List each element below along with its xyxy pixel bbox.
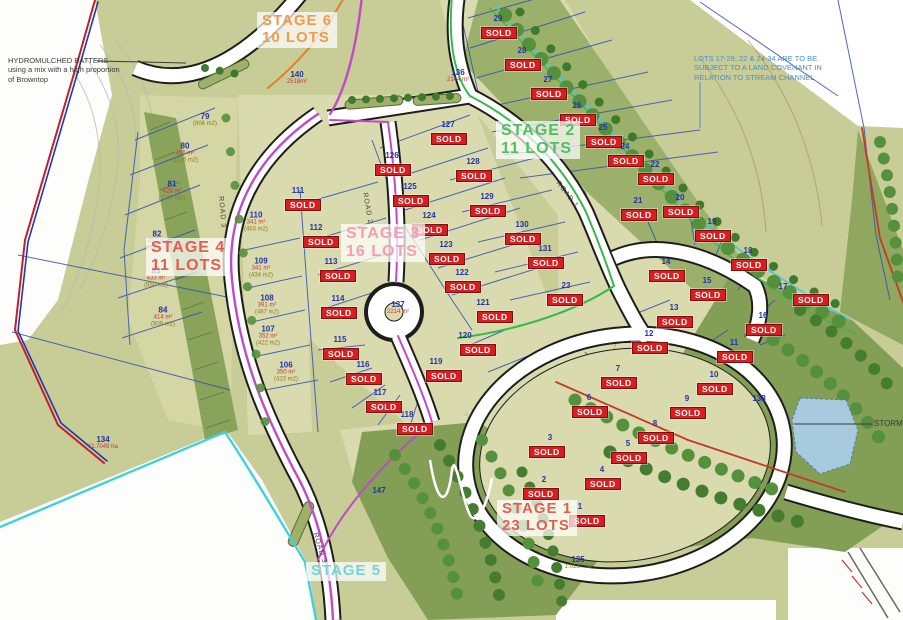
- lot-marker: 22: [651, 161, 660, 169]
- lot-area: (434 m2): [249, 272, 273, 279]
- lot-number: 135: [565, 556, 592, 564]
- road-name-label: ROAD 3: [311, 532, 328, 565]
- sold-badge: SOLD: [649, 270, 685, 282]
- lot-number: 24: [621, 143, 630, 151]
- lot-number: 20: [676, 194, 685, 202]
- lot-number: 110: [244, 212, 268, 220]
- lot-area: 391 m²: [255, 303, 279, 310]
- lot-marker: 26: [573, 102, 582, 110]
- lot-number: 129: [480, 193, 493, 201]
- lot-area: 433 m²: [144, 276, 168, 283]
- lot-marker: 118: [401, 411, 414, 419]
- lot-marker: 27: [544, 76, 553, 84]
- lot-marker: 108391 m²(467 m2): [255, 295, 279, 316]
- road-name-label: ROAD 3: [217, 196, 227, 229]
- lot-marker: 106350 m²(423 m2): [274, 362, 298, 383]
- lot-area: (463 m2): [244, 226, 268, 233]
- sold-badge: SOLD: [657, 316, 693, 328]
- lot-number: 117: [374, 389, 387, 397]
- lot-area: 1.0137 ha: [565, 564, 592, 571]
- sold-badge: SOLD: [528, 257, 564, 269]
- lot-number: 80: [172, 143, 198, 151]
- lot-marker: 23: [562, 282, 571, 290]
- sold-badge: SOLD: [670, 407, 706, 419]
- stormwater-label: STORMW: [874, 419, 903, 429]
- lot-number: 115: [334, 336, 347, 344]
- lot-marker: 114: [332, 295, 345, 303]
- lot-area: 456 m²: [172, 151, 198, 158]
- lot-number: 2: [542, 476, 546, 484]
- lot-number: 114: [332, 295, 345, 303]
- sold-badge: SOLD: [285, 199, 321, 211]
- sold-badge: SOLD: [346, 373, 382, 385]
- lot-area: (1107 m2): [159, 195, 186, 202]
- lot-area: (423 m2): [274, 376, 298, 383]
- lot-marker: 1351.0137 ha: [565, 556, 592, 571]
- stage-label-stage-3: STAGE 316 LOTS: [341, 224, 425, 262]
- lot-marker: 4: [600, 466, 604, 474]
- sold-badge: SOLD: [529, 446, 565, 458]
- lot-marker: 113: [325, 258, 338, 266]
- hydromulch-note: HYDROMULCHED BATTERSusing a mix with a h…: [8, 56, 120, 84]
- lot-area: (467 m2): [255, 309, 279, 316]
- lot-number: 126: [385, 152, 398, 160]
- lot-number: 107: [256, 326, 280, 334]
- sold-badge: SOLD: [429, 253, 465, 265]
- lot-number: 113: [325, 258, 338, 266]
- lot-number: 26: [573, 102, 582, 110]
- sold-badge: SOLD: [586, 136, 622, 148]
- lot-marker: 28: [518, 47, 527, 55]
- sold-badge: SOLD: [632, 342, 668, 354]
- lot-marker: 125: [403, 183, 416, 191]
- road-name-label: ROAD 2: [361, 192, 373, 225]
- sold-badge: SOLD: [572, 406, 608, 418]
- lot-marker: 122: [455, 269, 468, 277]
- sold-badge: SOLD: [481, 27, 517, 39]
- lot-marker: 127: [441, 121, 454, 129]
- lot-marker: 111: [292, 187, 304, 195]
- lot-area: 2144 m²: [447, 77, 469, 84]
- sold-badge: SOLD: [460, 344, 496, 356]
- lot-marker: 21: [634, 197, 643, 205]
- sold-badge: SOLD: [456, 170, 492, 182]
- sold-badge: SOLD: [746, 324, 782, 336]
- lot-marker: 13411.7049 ha: [88, 436, 118, 451]
- lot-marker: 109341 m²(434 m2): [249, 258, 273, 279]
- lot-marker: 17: [779, 283, 788, 291]
- lot-number: 17: [779, 283, 788, 291]
- sold-badge: SOLD: [431, 133, 467, 145]
- lot-number: 138: [752, 395, 765, 403]
- lot-marker: 115: [334, 336, 347, 344]
- lot-number: 120: [458, 332, 471, 340]
- sold-badge: SOLD: [585, 478, 621, 490]
- lot-area: (1116 m2): [172, 157, 198, 164]
- lot-marker: 107352 m²(422 m2): [256, 326, 280, 347]
- lot-number: 111: [292, 187, 304, 195]
- lot-marker: 130: [515, 221, 528, 229]
- lot-marker: 112: [310, 224, 323, 232]
- lot-number: 9: [685, 395, 689, 403]
- lot-number: 3: [548, 434, 552, 442]
- lot-area: 428 m²: [159, 189, 186, 196]
- lot-number: 131: [538, 245, 551, 253]
- lot-marker: 123: [439, 241, 452, 249]
- sold-badge: SOLD: [393, 195, 429, 207]
- sold-badge: SOLD: [611, 452, 647, 464]
- stage-label-stage-5: STAGE 5: [306, 562, 386, 581]
- sold-badge: SOLD: [323, 348, 359, 360]
- lot-number: 8: [653, 420, 657, 428]
- sold-badge: SOLD: [375, 164, 411, 176]
- sold-badge: SOLD: [547, 294, 583, 306]
- lot-number: 134: [88, 436, 118, 444]
- lot-marker: 129: [480, 193, 493, 201]
- sold-badge: SOLD: [320, 270, 356, 282]
- lot-marker: 1402518m²: [287, 71, 307, 86]
- lot-marker: 81428 m²(1107 m2): [159, 181, 186, 202]
- lot-number: 79: [193, 113, 217, 121]
- plan-annotation-layer: STORMW 29SOLD28SOLD27SOLD26SOLD25SOLD24S…: [0, 0, 903, 620]
- lot-marker: 79(806 m2): [193, 113, 217, 128]
- lot-marker: 16: [759, 312, 768, 320]
- sold-badge: SOLD: [321, 307, 357, 319]
- lot-marker: 120: [458, 332, 471, 340]
- lot-number: 116: [357, 361, 370, 369]
- lot-area: 341 m²: [249, 266, 273, 273]
- lot-marker: 84414 m²(809 m2): [151, 307, 175, 328]
- lot-area: 11.7049 ha: [88, 444, 118, 451]
- lot-marker: 3: [548, 434, 552, 442]
- lot-number: 13: [670, 304, 679, 312]
- lot-marker: 11: [730, 339, 738, 347]
- lot-number: 125: [403, 183, 416, 191]
- lot-number: 12: [645, 330, 654, 338]
- lot-number: 21: [634, 197, 643, 205]
- lot-marker: 128: [466, 158, 479, 166]
- lot-number: 122: [455, 269, 468, 277]
- sold-badge: SOLD: [695, 230, 731, 242]
- lot-number: 112: [310, 224, 323, 232]
- lot-number: 136: [447, 69, 469, 77]
- lot-number: 14: [662, 258, 671, 266]
- sold-badge: SOLD: [426, 370, 462, 382]
- lot-marker: 10: [710, 371, 719, 379]
- road-name-label: ROAD 1: [554, 180, 579, 210]
- lot-number: 121: [476, 299, 489, 307]
- lot-area: 341 m²: [244, 220, 268, 227]
- lot-number: 124: [422, 212, 435, 220]
- lot-marker: 18: [744, 247, 753, 255]
- sold-badge: SOLD: [303, 236, 339, 248]
- lot-number: 1: [578, 503, 582, 511]
- lot-marker: 14: [662, 258, 671, 266]
- sold-badge: SOLD: [366, 401, 402, 413]
- stage-label-stage-4: STAGE 411 LOTS: [146, 238, 230, 276]
- sold-badge: SOLD: [793, 294, 829, 306]
- lot-number: 127: [441, 121, 454, 129]
- sold-badge: SOLD: [505, 59, 541, 71]
- lot-number: 15: [703, 277, 712, 285]
- lot-marker: 1: [578, 503, 582, 511]
- lot-number: 11: [730, 339, 738, 347]
- lot-number: 81: [159, 181, 186, 189]
- lot-number: 128: [466, 158, 479, 166]
- lot-number: 25: [599, 124, 608, 132]
- lot-number: 22: [651, 161, 660, 169]
- lot-marker: 121: [476, 299, 489, 307]
- lot-marker: 1362144 m²: [447, 69, 469, 84]
- lot-marker: 25: [599, 124, 608, 132]
- lot-marker: 9: [685, 395, 689, 403]
- lot-area: 414 m²: [151, 315, 175, 322]
- lot-area: (809 m2): [151, 321, 175, 328]
- lot-area: 2214 m²: [387, 309, 409, 316]
- lot-number: 28: [518, 47, 527, 55]
- lot-number: 23: [562, 282, 571, 290]
- stage-label-stage-6: STAGE 610 LOTS: [257, 12, 337, 48]
- lot-number: 108: [255, 295, 279, 303]
- lot-marker: 12: [645, 330, 654, 338]
- lot-marker: 117: [374, 389, 387, 397]
- lot-marker: 1372214 m²: [387, 301, 409, 316]
- covenant-note: LOTS 17-29, 22 & 24-34 ARE TO BESUBJECT …: [694, 54, 822, 82]
- lot-marker: 20: [676, 194, 685, 202]
- stage-label-stage-2: STAGE 211 LOTS: [496, 121, 580, 159]
- sold-badge: SOLD: [690, 289, 726, 301]
- lot-number: 147: [372, 487, 385, 495]
- lot-marker: 126: [385, 152, 398, 160]
- lot-marker: 8: [653, 420, 657, 428]
- lot-marker: 147: [372, 487, 385, 495]
- sold-badge: SOLD: [717, 351, 753, 363]
- sold-badge: SOLD: [505, 233, 541, 245]
- lot-number: 29: [494, 15, 503, 23]
- sold-badge: SOLD: [638, 432, 674, 444]
- lot-number: 84: [151, 307, 175, 315]
- lot-area: (850 m2): [144, 282, 168, 289]
- lot-number: 19: [708, 218, 717, 226]
- lot-number: 4: [600, 466, 604, 474]
- lot-marker: 131: [538, 245, 551, 253]
- lot-number: 137: [387, 301, 409, 309]
- lot-marker: 29: [494, 15, 503, 23]
- lot-number: 123: [439, 241, 452, 249]
- lot-marker: 110341 m²(463 m2): [244, 212, 268, 233]
- sold-badge: SOLD: [638, 173, 674, 185]
- lot-marker: 13: [670, 304, 679, 312]
- lot-number: 109: [249, 258, 273, 266]
- sold-badge: SOLD: [523, 488, 559, 500]
- lot-number: 16: [759, 312, 768, 320]
- lot-marker: 124: [422, 212, 435, 220]
- lot-number: 27: [544, 76, 553, 84]
- lot-marker: 7: [616, 365, 620, 373]
- lot-marker: 80456 m²(1116 m2): [172, 143, 198, 164]
- sold-badge: SOLD: [477, 311, 513, 323]
- lot-number: 18: [744, 247, 753, 255]
- lot-marker: 116: [357, 361, 370, 369]
- sold-badge: SOLD: [397, 423, 433, 435]
- lot-marker: 6: [587, 394, 591, 402]
- lot-area: 350 m²: [274, 370, 298, 377]
- stage-label-stage-1: STAGE 123 LOTS: [497, 500, 577, 536]
- lot-number: 118: [401, 411, 414, 419]
- lot-area: 352 m²: [256, 334, 280, 341]
- lot-marker: 138: [752, 395, 765, 403]
- sold-badge: SOLD: [470, 205, 506, 217]
- lot-marker: 5: [626, 440, 630, 448]
- lot-number: 140: [287, 71, 307, 79]
- lot-number: 7: [616, 365, 620, 373]
- lot-marker: 19: [708, 218, 717, 226]
- lot-area: 2518m²: [287, 79, 307, 86]
- lot-marker: 2: [542, 476, 546, 484]
- lot-marker: 24: [621, 143, 630, 151]
- sold-badge: SOLD: [608, 155, 644, 167]
- lot-marker: 15: [703, 277, 712, 285]
- sold-badge: SOLD: [621, 209, 657, 221]
- sold-badge: SOLD: [663, 206, 699, 218]
- lot-marker: 119: [430, 358, 443, 366]
- sold-badge: SOLD: [445, 281, 481, 293]
- lot-number: 106: [274, 362, 298, 370]
- sold-badge: SOLD: [531, 88, 567, 100]
- lot-area: (806 m2): [193, 121, 217, 128]
- lot-number: 10: [710, 371, 719, 379]
- lot-number: 130: [515, 221, 528, 229]
- sold-badge: SOLD: [731, 259, 767, 271]
- sold-badge: SOLD: [697, 383, 733, 395]
- lot-number: 119: [430, 358, 443, 366]
- subdivision-staging-plan: STORMW 29SOLD28SOLD27SOLD26SOLD25SOLD24S…: [0, 0, 903, 620]
- lot-area: (422 m2): [256, 340, 280, 347]
- sold-badge: SOLD: [601, 377, 637, 389]
- lot-number: 6: [587, 394, 591, 402]
- lot-number: 5: [626, 440, 630, 448]
